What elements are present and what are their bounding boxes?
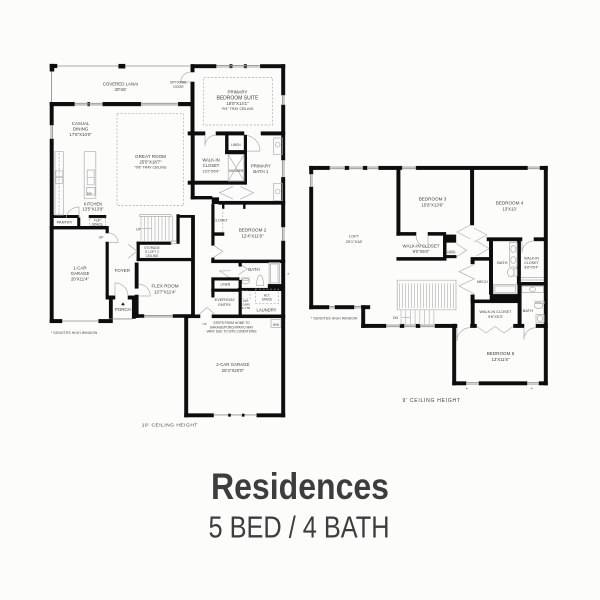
svg-text:9' CEILING HEIGHT: 9' CEILING HEIGHT [403, 398, 461, 404]
svg-text:WALK-IN CLOSET: WALK-IN CLOSET [403, 243, 440, 248]
svg-text:& CTR: & CTR [242, 306, 250, 310]
svg-text:CLOSET: CLOSET [203, 163, 220, 168]
svg-text:COVERED LANAI: COVERED LANAI [103, 82, 139, 87]
svg-text:VARY DUE TO SITE CONDITIONS: VARY DUE TO SITE CONDITIONS [206, 330, 256, 334]
svg-text:WALK-IN CLOSET: WALK-IN CLOSET [480, 310, 513, 314]
svg-text:BEDROOM 2: BEDROOM 2 [239, 228, 267, 233]
svg-text:UP: UP [136, 227, 141, 231]
svg-text:BATH 1: BATH 1 [253, 169, 269, 174]
svg-text:EVERYDAY: EVERYDAY [215, 298, 236, 302]
svg-text:13'7"X11'4": 13'7"X11'4" [154, 290, 176, 295]
svg-text:BEDROOM 5: BEDROOM 5 [487, 351, 515, 356]
svg-text:25'5"X18'7": 25'5"X18'7" [139, 160, 162, 165]
svg-text:10' CEILING HEIGHT: 10' CEILING HEIGHT [142, 422, 198, 428]
svg-text:2-CAR GARAGE: 2-CAR GARAGE [216, 362, 249, 367]
svg-text:PORCH: PORCH [115, 307, 131, 312]
svg-text:20'4"X20'0": 20'4"X20'0" [222, 368, 245, 373]
svg-text:* DENOTES HIGH WINDOW: * DENOTES HIGH WINDOW [51, 331, 98, 335]
svg-text:FLEX ROOM: FLEX ROOM [151, 284, 178, 289]
svg-text:*9'4" TRAY CEILING: *9'4" TRAY CEILING [221, 107, 253, 111]
svg-text:LINEN: LINEN [231, 143, 241, 147]
svg-text:DINING: DINING [73, 127, 89, 132]
svg-text:LINEN: LINEN [447, 250, 455, 254]
svg-text:Residences: Residences [211, 465, 389, 507]
svg-text:LAUNDRY: LAUNDRY [257, 307, 277, 312]
svg-text:5 BED / 4 BATH: 5 BED / 4 BATH [209, 511, 390, 545]
svg-text:13'2"X6'9": 13'2"X6'9" [202, 170, 220, 174]
svg-text:18'0"X14'1": 18'0"X14'1" [226, 101, 249, 106]
svg-text:WALK-IN: WALK-IN [524, 257, 539, 261]
svg-text:PRIMARY: PRIMARY [251, 164, 271, 169]
svg-text:FOYER: FOYER [115, 268, 130, 273]
svg-text:CLOSET: CLOSET [524, 261, 539, 265]
svg-text:1-CAR: 1-CAR [73, 266, 86, 271]
svg-text:9'0"X5'0": 9'0"X5'0" [413, 249, 430, 254]
svg-text:30'X8': 30'X8' [115, 87, 127, 92]
svg-text:LINEN: LINEN [221, 283, 231, 287]
svg-text:12'4"X11'9": 12'4"X11'9" [241, 234, 263, 239]
svg-text:LOFT: LOFT [349, 234, 360, 239]
svg-text:CLOSET: CLOSET [214, 219, 229, 223]
svg-text:UP: UP [99, 236, 104, 240]
svg-text:*: * [287, 272, 289, 277]
svg-text:BEDROOM 4: BEDROOM 4 [496, 201, 524, 206]
svg-text:SHOWER: SHOWER [229, 169, 244, 173]
svg-text:DW: DW [87, 192, 92, 196]
svg-text:BEDROOM 3: BEDROOM 3 [419, 197, 447, 202]
svg-text:MECH: MECH [477, 280, 488, 284]
svg-text:BATH: BATH [497, 260, 507, 265]
svg-text:BATH: BATH [523, 308, 533, 313]
svg-text:17'8"X10'0": 17'8"X10'0" [69, 132, 92, 137]
svg-text:GARAGE: GARAGE [71, 271, 90, 276]
svg-text:CEILING: CEILING [146, 254, 159, 258]
svg-text:*9'8" TRAY CEILING: *9'8" TRAY CEILING [134, 166, 166, 170]
svg-text:BATH: BATH [248, 267, 259, 272]
svg-text:OPTIONAL: OPTIONAL [170, 81, 187, 85]
svg-text:9'6"X5'3": 9'6"X5'3" [488, 315, 504, 319]
svg-text:UP: UP [202, 322, 206, 326]
svg-text:SPACE: SPACE [262, 297, 273, 301]
svg-text:SPACE: SPACE [92, 222, 103, 226]
svg-text:CASUAL: CASUAL [72, 121, 90, 126]
svg-text:DN: DN [393, 316, 398, 320]
svg-text:DOOR: DOOR [173, 85, 184, 89]
svg-text:25'1"X18': 25'1"X18' [346, 239, 363, 244]
svg-text:GREAT ROOM: GREAT ROOM [135, 154, 166, 159]
svg-text:ENTRY: ENTRY [218, 303, 231, 307]
svg-text:13'5"X13'9": 13'5"X13'9" [82, 206, 104, 211]
svg-text:*: * [531, 387, 533, 392]
svg-text:W/H: W/H [273, 323, 280, 327]
svg-text:20'X11'4": 20'X11'4" [71, 277, 89, 282]
svg-text:8'8"X5'4": 8'8"X5'4" [524, 266, 539, 270]
svg-text:PANTRY: PANTRY [57, 220, 73, 225]
svg-text:* DENOTES HIGH WINDOW: * DENOTES HIGH WINDOW [311, 317, 358, 321]
svg-text:15'6"X13'6": 15'6"X13'6" [421, 202, 444, 207]
svg-text:PRIMARY: PRIMARY [228, 90, 248, 95]
svg-text:13'X13': 13'X13' [502, 206, 517, 211]
svg-text:WALK-IN: WALK-IN [202, 158, 219, 163]
svg-text:13'X11'6": 13'X11'6" [491, 357, 509, 362]
svg-text:*: * [466, 387, 468, 392]
